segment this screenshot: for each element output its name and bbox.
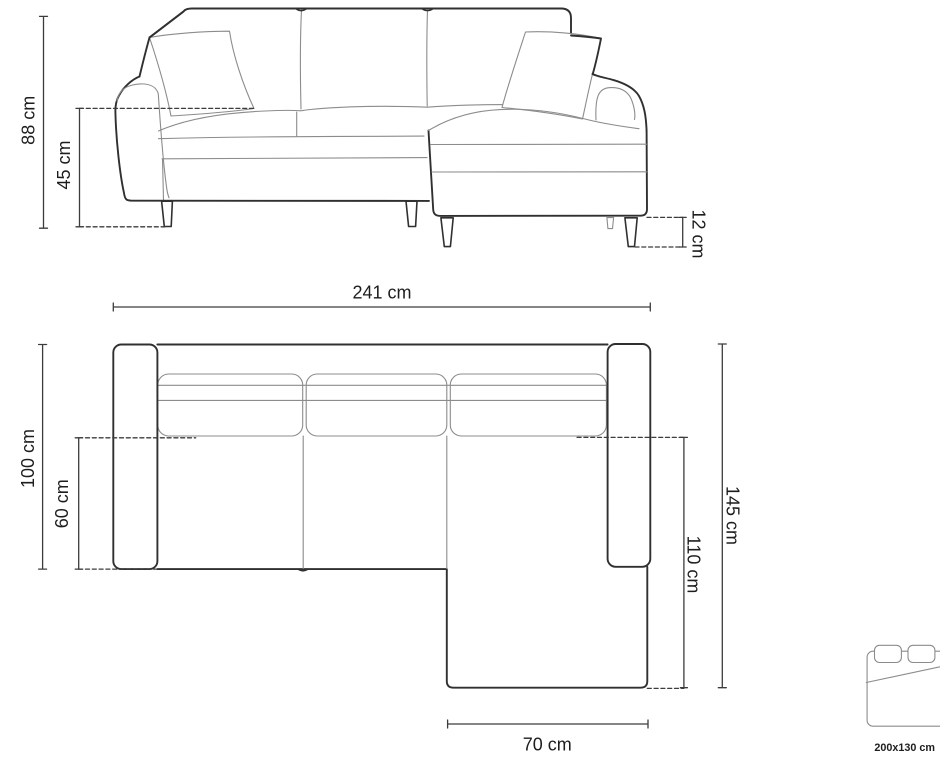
- svg-text:70 cm: 70 cm: [523, 735, 572, 755]
- svg-text:12 cm: 12 cm: [688, 209, 708, 258]
- svg-text:45 cm: 45 cm: [54, 140, 74, 189]
- svg-text:88 cm: 88 cm: [19, 96, 39, 145]
- svg-text:110 cm: 110 cm: [683, 536, 703, 594]
- svg-text:60 cm: 60 cm: [52, 479, 72, 528]
- svg-text:145 cm: 145 cm: [723, 486, 743, 545]
- svg-text:241 cm: 241 cm: [352, 283, 411, 303]
- svg-text:200x130 cm: 200x130 cm: [874, 742, 935, 754]
- svg-text:100 cm: 100 cm: [18, 429, 38, 488]
